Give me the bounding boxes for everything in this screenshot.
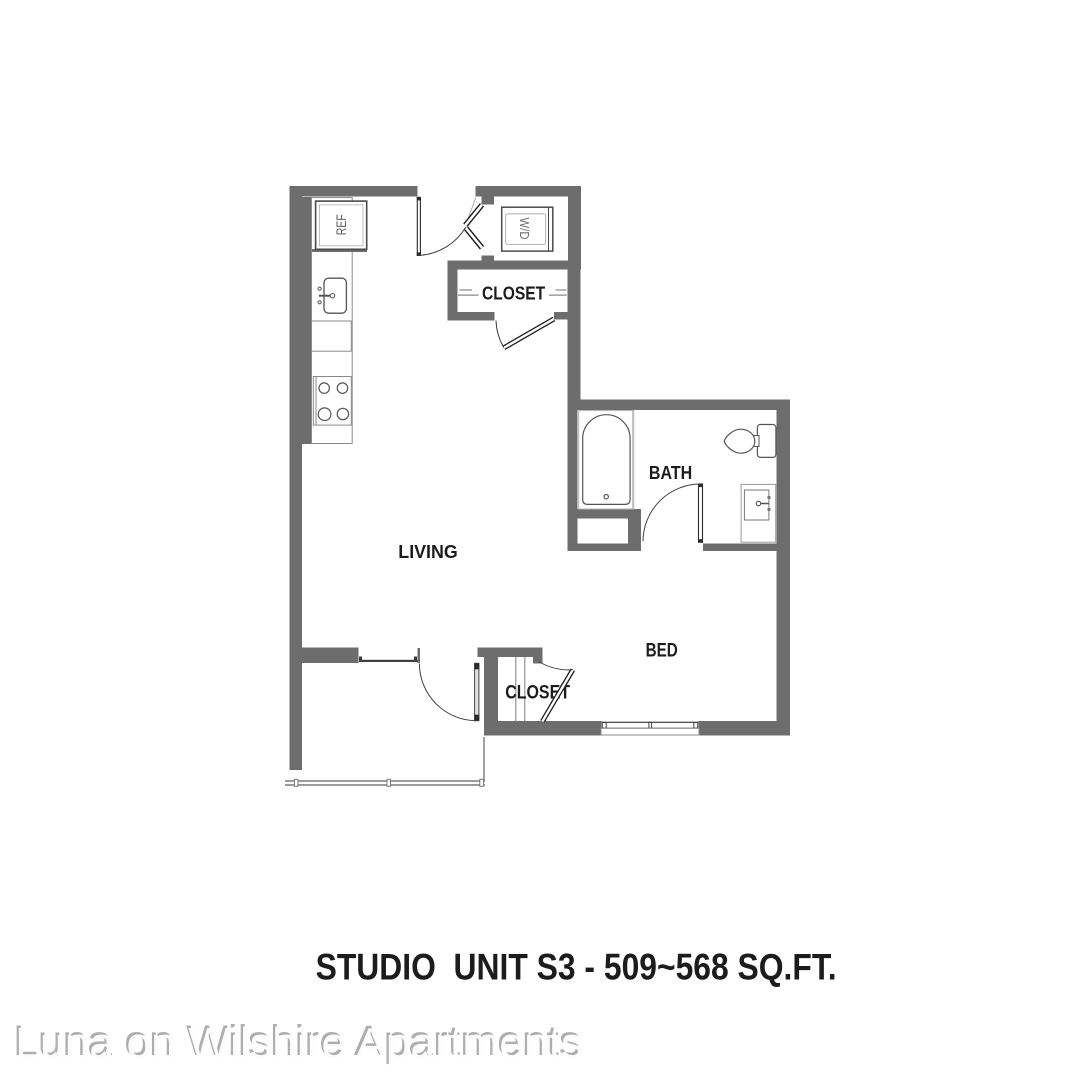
svg-text:Luna on Wilshire Apartments: Luna on Wilshire Apartments xyxy=(15,1019,583,1067)
svg-text:CLOSET: CLOSET xyxy=(482,282,546,303)
svg-text:REF: REF xyxy=(333,214,349,235)
svg-text:LIVING: LIVING xyxy=(398,542,458,562)
svg-text:BED: BED xyxy=(646,640,678,662)
svg-text:STUDIO UNIT S3 - 509~568 SQ.F: STUDIO UNIT S3 - 509~568 SQ.FT. xyxy=(316,945,837,987)
svg-text:BATH: BATH xyxy=(649,463,692,483)
svg-text:W/D: W/D xyxy=(517,218,532,240)
